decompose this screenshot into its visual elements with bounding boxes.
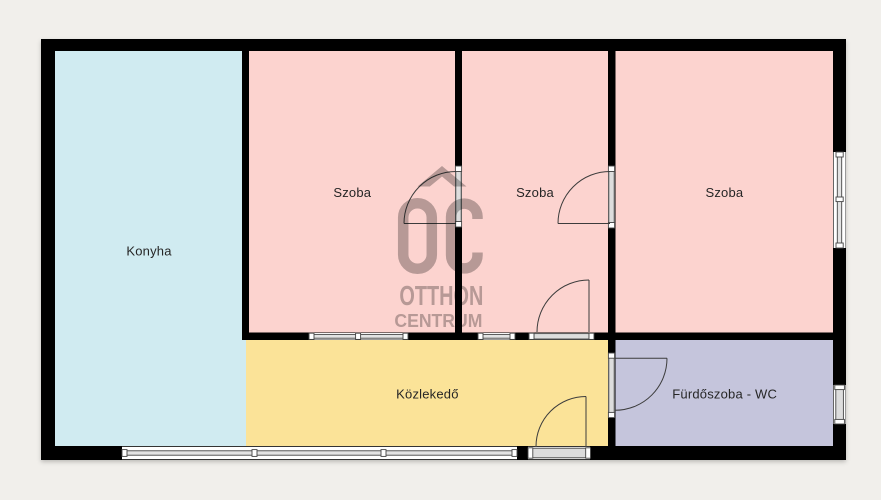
- svg-text:Szoba: Szoba: [516, 185, 554, 200]
- svg-text:Konyha: Konyha: [126, 243, 172, 258]
- svg-text:CENTRUM: CENTRUM: [394, 310, 482, 331]
- svg-text:OTTHON: OTTHON: [399, 280, 483, 311]
- svg-text:Szoba: Szoba: [705, 185, 743, 200]
- svg-text:Fürdőszoba - WC: Fürdőszoba - WC: [672, 386, 777, 401]
- svg-text:Szoba: Szoba: [333, 185, 371, 200]
- svg-text:Közlekedő: Közlekedő: [396, 386, 459, 401]
